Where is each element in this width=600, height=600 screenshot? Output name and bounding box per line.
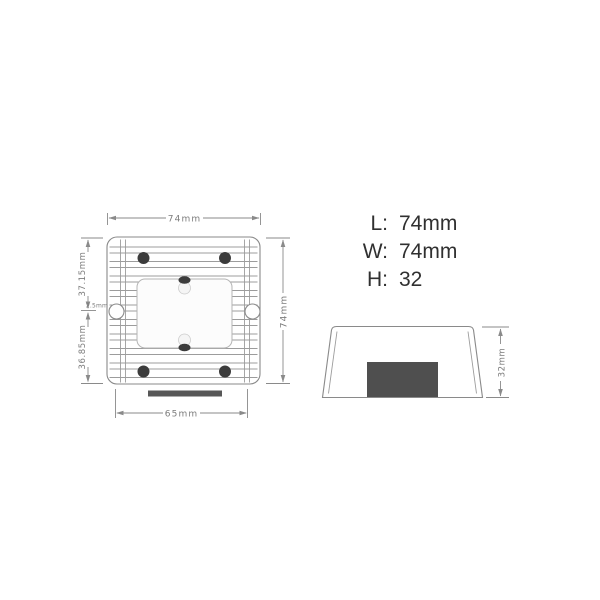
screw-dot xyxy=(219,252,231,264)
dim-label-hole: 2.5mm xyxy=(86,303,108,310)
center-label-plate xyxy=(137,276,232,351)
connector-strip-top-view xyxy=(148,391,222,397)
spec-row-length: L: 74mm xyxy=(348,210,457,238)
screw-dot xyxy=(138,252,150,264)
dimension-top-width: 74mm xyxy=(108,213,261,225)
mounting-hole-left xyxy=(109,304,124,319)
dimension-side-height: 32mm xyxy=(482,327,509,398)
technical-drawing-svg: 74mm 74mm 37.15mm 36.85mm xyxy=(0,0,600,600)
screw-dot xyxy=(138,366,150,378)
mounting-hole-right xyxy=(245,304,260,319)
label-screw-bottom xyxy=(179,344,191,352)
dimension-right-height: 74mm xyxy=(266,238,290,384)
dim-label-left-lower: 36.85mm xyxy=(78,324,88,369)
dim-label-side-height: 32mm xyxy=(498,348,508,378)
spec-text-block: L: 74mm W: 74mm H: 32 xyxy=(348,210,457,294)
spec-height-label: H: xyxy=(348,266,388,294)
dim-label-right-height: 74mm xyxy=(280,295,290,328)
side-view xyxy=(323,327,483,398)
dimension-diagram: 74mm 74mm 37.15mm 36.85mm xyxy=(0,0,600,600)
label-screw-top xyxy=(179,276,191,284)
spec-row-height: H: 32 xyxy=(348,266,457,294)
spec-length-label: L: xyxy=(348,210,388,238)
dim-label-left-upper: 37.15mm xyxy=(78,251,88,296)
dimension-left-lower: 36.85mm xyxy=(78,312,103,384)
spec-height-value: 32 xyxy=(399,266,422,294)
spec-width-value: 74mm xyxy=(399,238,457,266)
spec-width-label: W: xyxy=(348,238,388,266)
dim-label-bottom-base: 65mm xyxy=(165,410,198,420)
spec-length-value: 74mm xyxy=(399,210,457,238)
top-view xyxy=(107,237,260,397)
dim-label-top-width: 74mm xyxy=(168,215,201,225)
connector-block-side-view xyxy=(367,362,438,397)
spec-row-width: W: 74mm xyxy=(348,238,457,266)
dimension-left-upper: 37.15mm xyxy=(78,238,103,311)
screw-dot xyxy=(219,366,231,378)
